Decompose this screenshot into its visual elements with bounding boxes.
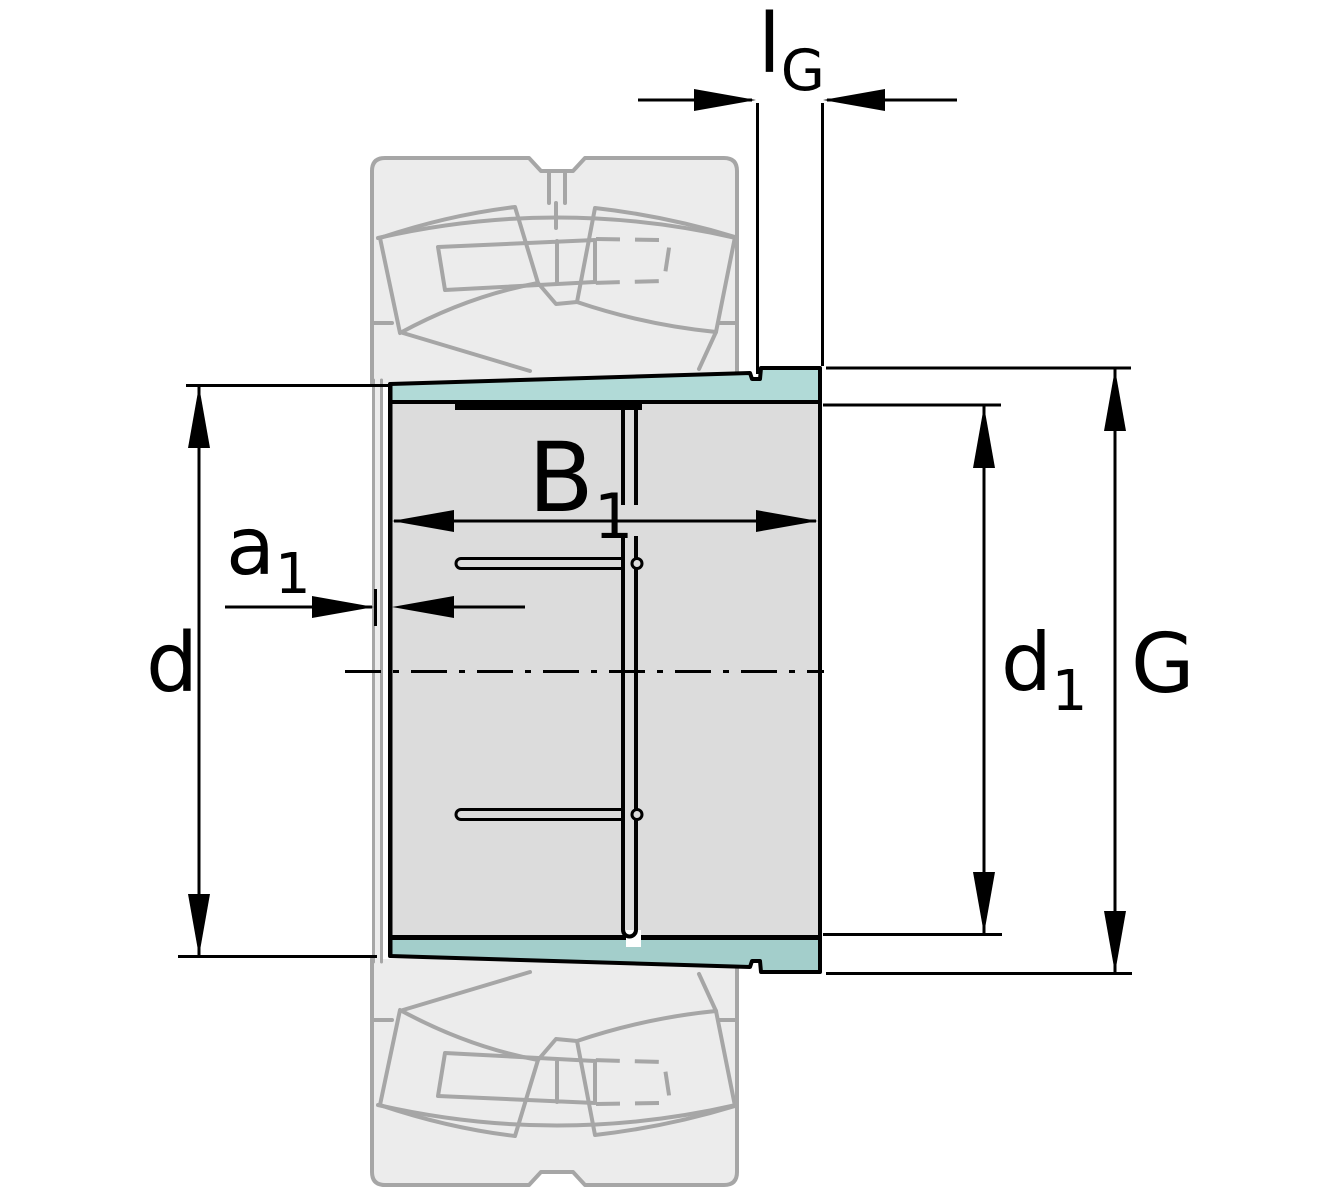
dim-label-lG: lG xyxy=(758,0,825,104)
slit-hole-upper xyxy=(632,559,642,569)
ghost-bearing-top xyxy=(372,158,737,384)
arrowhead-bottom xyxy=(1104,911,1126,973)
arrowhead-bottom xyxy=(973,872,995,934)
extension-lines xyxy=(758,103,823,374)
dimension-d1: d1 xyxy=(823,405,1087,935)
outer-ring-fill xyxy=(372,959,737,1185)
dim-label-d1: d1 xyxy=(1001,616,1087,724)
dim-label-G: G xyxy=(1131,617,1195,712)
ghost-bearing-bottom xyxy=(372,959,737,1185)
arrowhead-left xyxy=(694,89,756,111)
extension-lines xyxy=(823,405,1002,935)
adapter-sleeve-technical-drawing: lG B1 a1 d d1 G xyxy=(0,0,1330,1200)
outer-ring-fill xyxy=(372,158,737,384)
arrowhead-right xyxy=(823,89,885,111)
slit-hole-lower xyxy=(632,810,642,820)
arrowhead-bottom xyxy=(188,894,210,956)
arrowhead-top xyxy=(973,406,995,468)
drawing-canvas: lG B1 a1 d d1 G xyxy=(0,0,1330,1200)
arrowhead-top xyxy=(188,386,210,448)
dim-label-a1: a1 xyxy=(226,500,311,607)
dim-label-d: d xyxy=(146,616,198,711)
arrowhead-top xyxy=(1104,369,1126,431)
arrowhead-right-pointing xyxy=(312,596,374,618)
